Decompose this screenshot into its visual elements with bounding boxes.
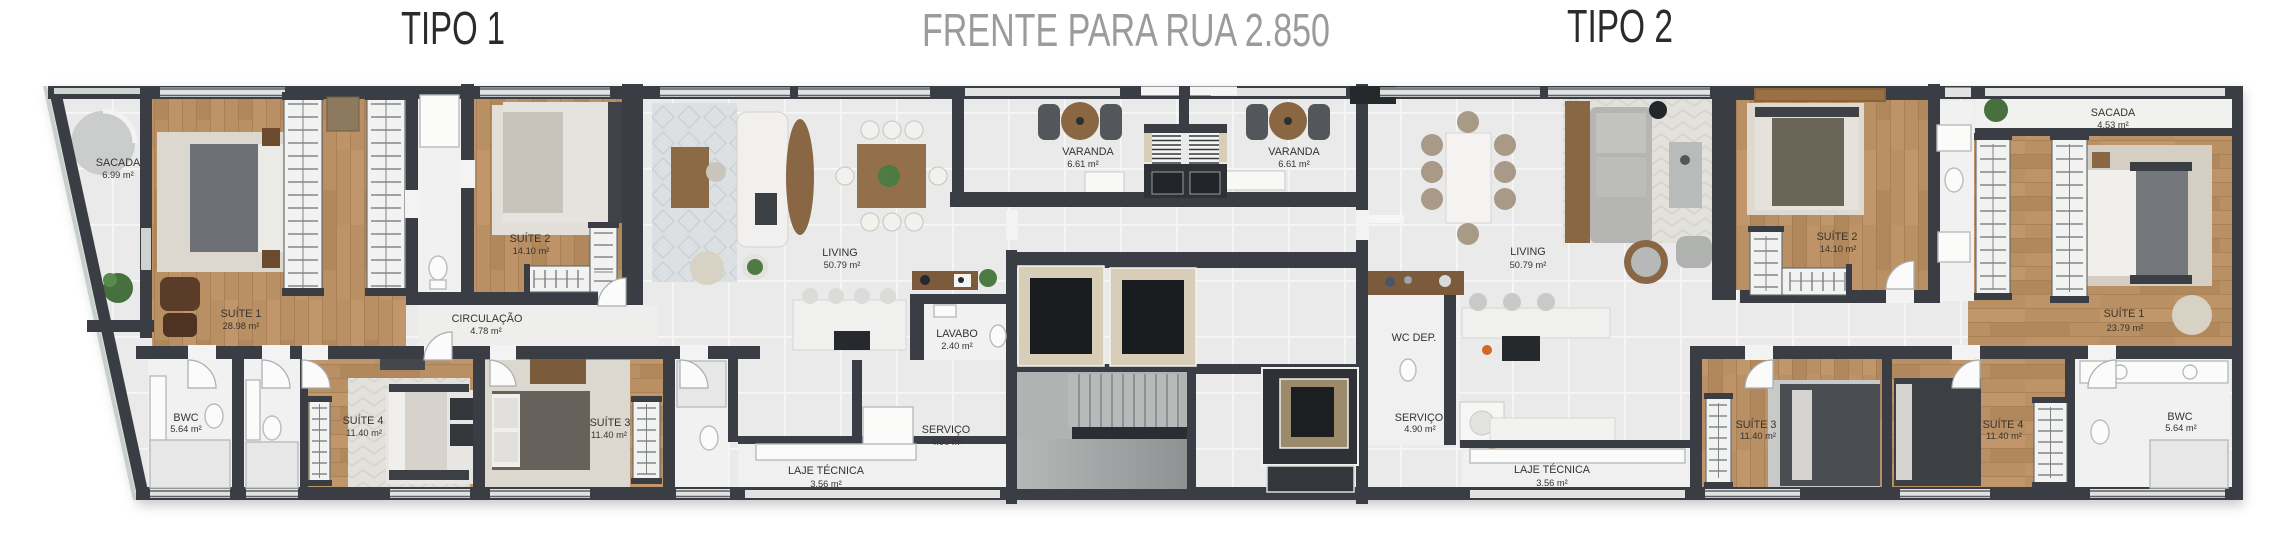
svg-text:LIVING: LIVING — [1510, 246, 1545, 258]
svg-text:SUÍTE 3: SUÍTE 3 — [590, 416, 631, 429]
svg-text:TIPO 2: TIPO 2 — [1567, 0, 1673, 52]
svg-text:SERVIÇO: SERVIÇO — [922, 424, 970, 436]
svg-text:11.40 m²: 11.40 m² — [1740, 431, 1776, 441]
svg-text:SERVIÇO: SERVIÇO — [1395, 412, 1443, 424]
svg-text:5.64 m²: 5.64 m² — [170, 424, 202, 434]
svg-text:SUÍTE 1: SUÍTE 1 — [2104, 307, 2145, 320]
svg-text:LIVING: LIVING — [822, 247, 857, 259]
svg-text:14.10 m²: 14.10 m² — [513, 246, 550, 256]
svg-text:23.79 m²: 23.79 m² — [2107, 323, 2144, 333]
svg-text:SACADA: SACADA — [96, 157, 141, 169]
svg-text:6.61 m²: 6.61 m² — [1278, 159, 1310, 169]
svg-text:5.64 m²: 5.64 m² — [2165, 423, 2197, 433]
svg-text:11.40 m²: 11.40 m² — [346, 428, 382, 438]
svg-text:3.56 m²: 3.56 m² — [1536, 478, 1568, 488]
svg-text:50.79 m²: 50.79 m² — [1510, 260, 1547, 270]
svg-text:FRENTE PARA RUA 2.850: FRENTE PARA RUA 2.850 — [922, 4, 1330, 56]
svg-text:SUÍTE 2: SUÍTE 2 — [510, 232, 551, 245]
svg-text:14.10 m²: 14.10 m² — [1820, 244, 1857, 254]
svg-text:TIPO 1: TIPO 1 — [401, 2, 505, 54]
svg-text:2.40 m²: 2.40 m² — [941, 341, 973, 351]
svg-text:SACADA: SACADA — [2091, 107, 2136, 119]
svg-text:28.98 m²: 28.98 m² — [223, 321, 260, 331]
svg-text:BWC: BWC — [173, 412, 198, 424]
svg-text:6.99 m²: 6.99 m² — [102, 170, 134, 180]
svg-text:LAVABO: LAVABO — [936, 328, 978, 340]
svg-text:4.90 m²: 4.90 m² — [1404, 424, 1436, 434]
svg-text:VARANDA: VARANDA — [1268, 146, 1320, 158]
svg-text:11.40 m²: 11.40 m² — [591, 430, 627, 440]
svg-text:4.53 m²: 4.53 m² — [2097, 120, 2129, 130]
svg-text:50.79 m²: 50.79 m² — [824, 260, 861, 270]
svg-text:WC DEP.: WC DEP. — [1392, 332, 1437, 344]
svg-text:VARANDA: VARANDA — [1062, 146, 1114, 158]
svg-text:4.78 m²: 4.78 m² — [470, 326, 502, 336]
svg-text:SUÍTE 2: SUÍTE 2 — [1817, 230, 1858, 243]
svg-text:6.61 m²: 6.61 m² — [1067, 159, 1099, 169]
svg-text:LAJE TÉCNICA: LAJE TÉCNICA — [1514, 463, 1591, 476]
svg-text:SUÍTE 4: SUÍTE 4 — [343, 414, 384, 427]
svg-text:3.56 m²: 3.56 m² — [810, 479, 842, 489]
svg-text:SUÍTE 1: SUÍTE 1 — [221, 307, 262, 320]
svg-text:11.40 m²: 11.40 m² — [1986, 431, 2022, 441]
svg-text:SUÍTE 3: SUÍTE 3 — [1736, 418, 1777, 431]
svg-text:LAJE TÉCNICA: LAJE TÉCNICA — [788, 464, 865, 477]
svg-text:4.90 m²: 4.90 m² — [931, 437, 963, 447]
svg-text:CIRCULAÇÃO: CIRCULAÇÃO — [452, 312, 523, 325]
svg-text:BWC: BWC — [2167, 411, 2192, 423]
svg-text:SUÍTE 4: SUÍTE 4 — [1983, 418, 2024, 431]
